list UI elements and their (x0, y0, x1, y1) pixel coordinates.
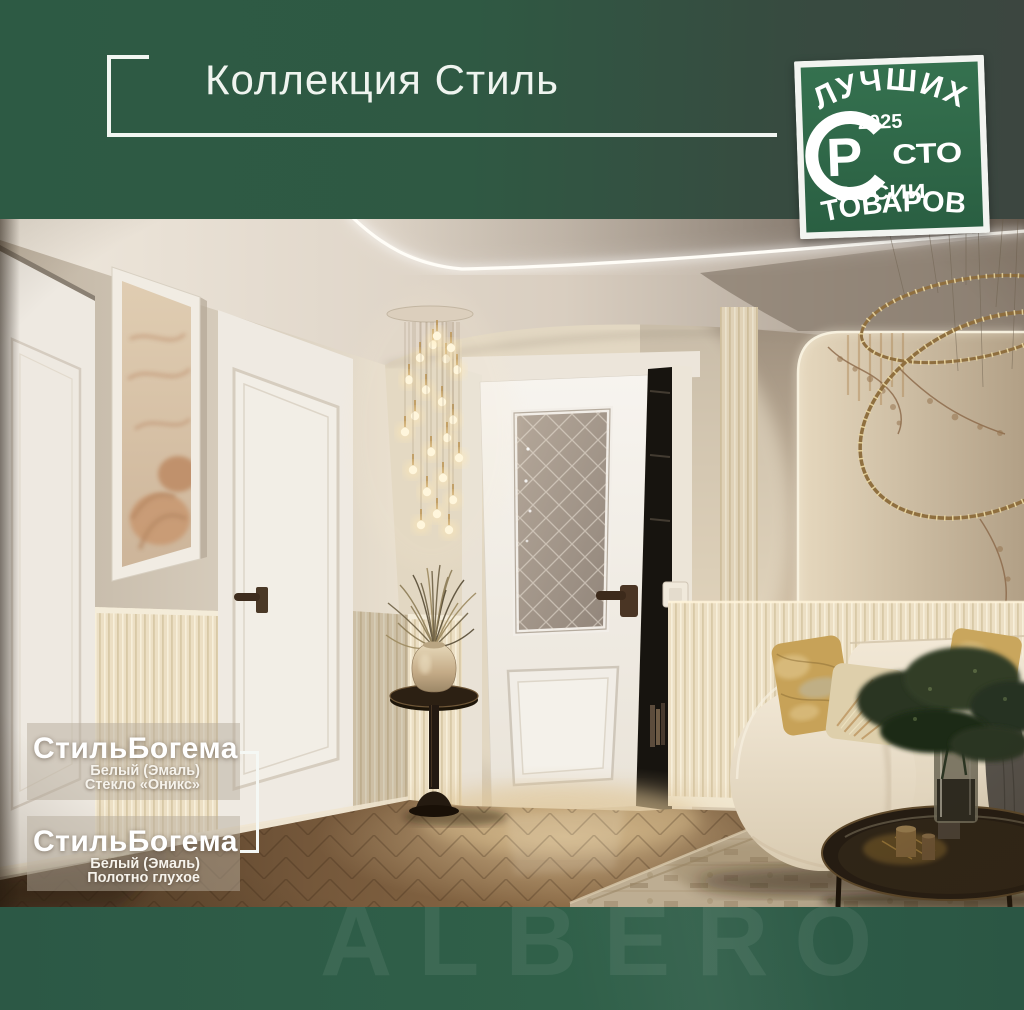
title-underline (107, 133, 777, 137)
product-variant: Стекло «Оникс» (33, 779, 200, 793)
title-bracket-tick (107, 55, 149, 59)
label-bracket (256, 751, 259, 853)
footer-band: ALBERO (0, 907, 1024, 1010)
product-name: СтильБогема (33, 733, 200, 765)
photo-vignette (0, 219, 1024, 907)
interior-scene (0, 219, 1024, 907)
catalog-poster: Коллекция Стиль ЛУЧШИХ 2025 Р СТО ОССИИ … (0, 0, 1024, 1010)
product-label-1: СтильБогема Белый (Эмаль) Стекло «Оникс» (27, 723, 240, 800)
badge-sto: СТО (892, 137, 963, 170)
page-title: Коллекция Стиль (205, 58, 559, 102)
product-variant: Полотно глухое (33, 872, 200, 886)
product-label-2: СтильБогема Белый (Эмаль) Полотно глухое (27, 816, 240, 891)
footer-sheen (0, 907, 1024, 1010)
label-bracket-top (240, 751, 259, 754)
award-badge: ЛУЧШИХ 2025 Р СТО ОССИИ ТОВАРОВ (794, 55, 990, 240)
badge-letter-r: Р (825, 127, 863, 188)
interior-photo (0, 219, 1024, 907)
title-bracket (107, 55, 111, 137)
product-name: СтильБогема (33, 826, 200, 858)
label-bracket-bottom (240, 850, 259, 853)
